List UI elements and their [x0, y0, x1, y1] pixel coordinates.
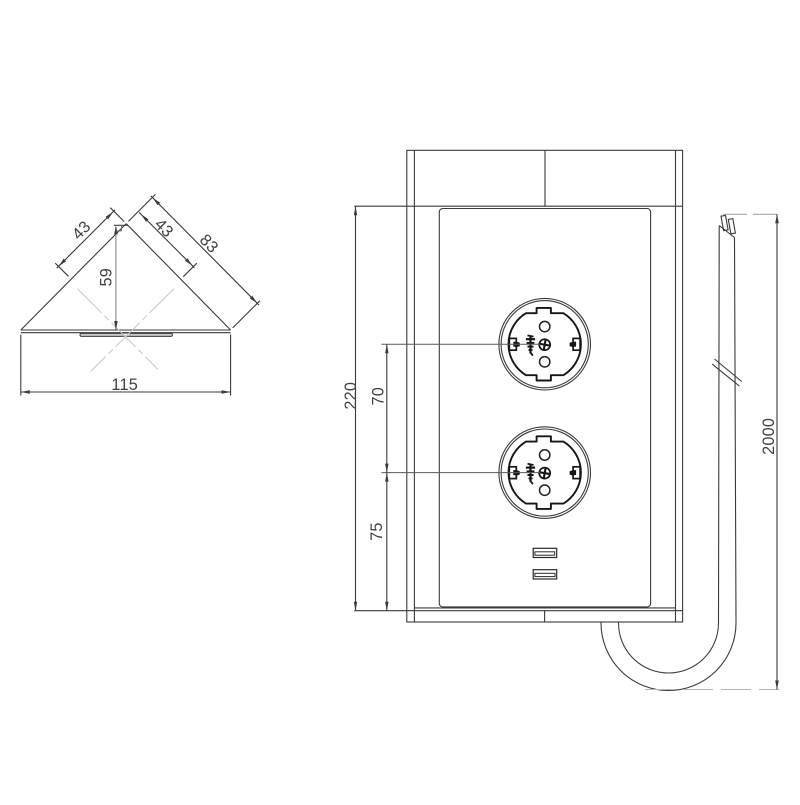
- svg-text:75: 75: [368, 522, 386, 541]
- svg-text:115: 115: [111, 376, 138, 394]
- svg-text:59: 59: [98, 268, 116, 287]
- svg-text:220: 220: [342, 382, 360, 410]
- svg-text:2000: 2000: [760, 418, 778, 455]
- svg-text:70: 70: [369, 387, 387, 406]
